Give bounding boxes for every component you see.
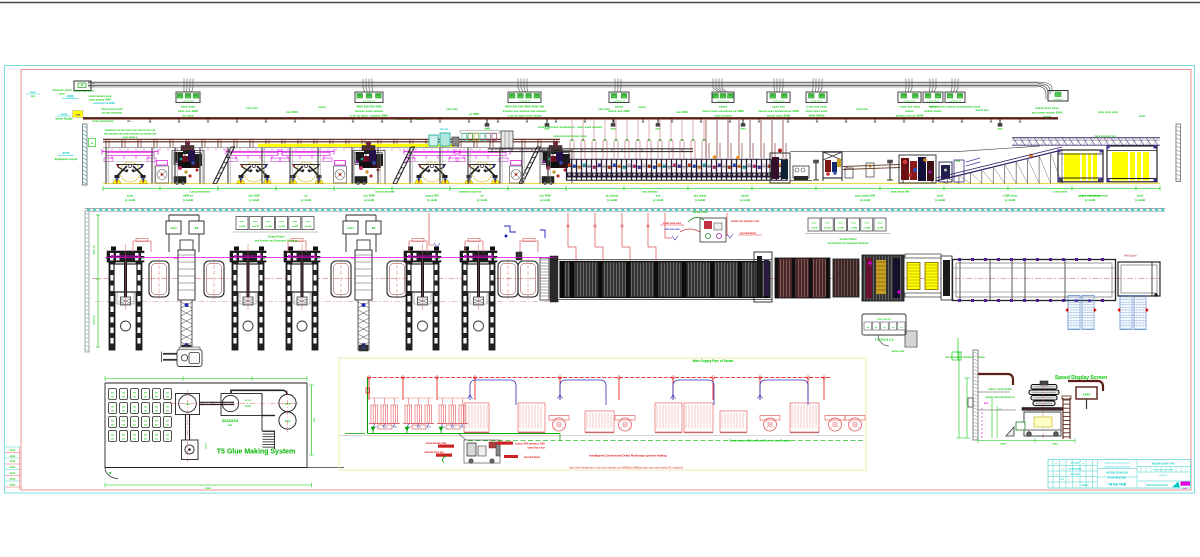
svg-text:xxxxxx xxx xxxxxx xxx xxxxxx: xxxxxx xxx xxxxxx xxx xxxxxx [503,109,547,113]
svg-text:x x xxx: x x xxx [1071,462,1080,465]
svg-text:xxxx: xxxx [1083,393,1091,397]
svg-text:xxxx: xxxx [313,417,316,423]
svg-text:xx: xx [195,226,199,230]
svg-text:xxxx xxx: xxxx xxx [856,107,868,111]
svg-text:xxx Xxxxxx xxx Xxxxxxxx Xxxxxx: xxx Xxxxxx xxx Xxxxxxxx Xxxxxxx [255,239,298,243]
svg-text:xxxxx: xxxxx [719,105,728,109]
svg-text:(x xxxB: (x xxxB [249,198,259,202]
svg-text:(x xxxB: (x xxxB [125,198,135,202]
svg-text:x x: x x [1060,478,1064,481]
svg-text:xxxx: xxxx [10,466,16,469]
svg-text:xx xxx xxxxxxxx: xx xxx xxxxxxxx [102,112,123,115]
svg-text:xxx 4000: xxx 4000 [539,194,551,198]
svg-text:xxxPB: xxxPB [239,226,246,228]
svg-text:(x xxxB: (x xxxB [653,198,663,202]
svg-text:xxxPB: xxxPB [291,226,298,228]
svg-text:xx 3000: xx 3000 [469,112,480,116]
svg-text:(x xxxB: (x xxxB [364,198,374,202]
svg-text:x-xxx-xx-xx: x-xxx-xx-xx [904,101,917,103]
svg-text:x-xxx-xx-xx: x-xxx-xx-xx [613,101,626,103]
svg-text:x-xxx-xx: x-xxx-xx [1054,99,1064,101]
svg-text:WJ250-2500-2-W: WJ250-2500-2-W [1152,462,1174,466]
svg-text:xxxxxxxx xx 3000: xxxxxxxx xx 3000 [93,101,115,105]
svg-text:xxxx Xxxxxxxx: xxxx Xxxxxxxx [524,457,541,459]
svg-text:xxxPB: xxxPB [863,228,870,230]
svg-text:xxxx: xxxx [812,223,818,225]
svg-text:xxxxxx xxx xxxxxxx x xxx: xxxxxx xxx xxxxxxx x xxx [731,221,760,223]
svg-text:x xxx xxxxx: x xxx xxxxx [1053,191,1068,194]
svg-text:xxxxxx xxxxx: xxxxxx xxxxx [692,211,708,214]
svg-text:Control Panel: Control Panel [268,235,285,239]
svg-text:xxxx xxx xxxx: xxxx xxx xxxx [664,229,680,231]
svg-text:xx --: xx -- [127,119,133,123]
svg-text:xxx Xxxxxx xxx Xxxxxxxx Xxxxxx: xxx Xxxxxx xxx Xxxxxxxx Xxxxxxx [945,356,985,359]
svg-text:2.5/3.4ML/350: 2.5/3.4ML/350 [1108,476,1126,480]
svg-text:x-xxx-xx-xx: x-xxx-xx-xx [811,101,824,103]
svg-text:xxxx: xxxx [10,484,16,487]
svg-text:xxxxx xxxx xxxx: xxxxx xxxx xxxx [1035,106,1059,110]
svg-text:xxxx: xxxx [1052,443,1058,446]
svg-text:x xx xx xxxx xxxx xxxxx: x xx xx xxxx xxxx xxxxx [507,114,542,118]
svg-text:xxxx: xxxx [347,226,354,230]
svg-text:xxxx: xxxx [1137,194,1144,198]
svg-text:5200.00: 5200.00 [92,245,96,255]
svg-text:(x xxxB: (x xxxB [695,198,705,202]
svg-text:xxxx: xxxx [1000,443,1006,446]
svg-text:x-xxx-xx-xx: x-xxx-xx-xx [927,101,940,103]
svg-text:xxx: xxx [956,160,961,163]
svg-text:xxxx xxx 4000: xxxx xxx 4000 [178,109,198,113]
svg-text:xxxx Xxxxxxxx: xxxx Xxxxxxxx [740,233,757,235]
svg-text:(x xxxB: (x xxxB [1005,198,1015,202]
svg-text:xxxPB: xxxPB [265,226,272,228]
svg-text:xxxxx 450: xxxxx 450 [425,194,439,198]
svg-text:xxxPB: xxxPB [252,226,259,228]
svg-text:x-xxx-xx-xx: x-xxx-xx-xx [949,101,962,103]
svg-text:xxxx: xxxx [1139,114,1146,118]
svg-text:4000 50000: 4000 50000 [809,114,825,118]
svg-text:xxxxx xxxx xxxxxxxx xx 3000: xxxxx xxxx xxxxxxxx xx 3000 [702,109,744,113]
svg-text:xx: xx [372,226,376,230]
svg-text:xx: xx [480,194,484,198]
svg-text:xx xxx xxx xx xx: xx xxx xxx xx xx [74,90,95,93]
svg-text:(x xxxB: (x xxxB [477,198,487,202]
svg-text:x x x: x x x [245,398,252,402]
svg-text:4000 500 300 4000: 4000 500 300 4000 [356,105,382,109]
svg-text:(x xxxB: (x xxxB [540,198,550,202]
svg-text:xxxxxxx: xxxxxxx [222,418,239,423]
svg-text:xxxx xxxx xxxx: xxxx xxxx xxxx [1098,110,1119,114]
svg-text:xx xxxx: xx xxxx [183,114,194,118]
svg-text:xxxx xxxxxxxxx: xxxx xxxxxxxxx [93,119,114,123]
svg-text:(x xxxB: (x xxxB [301,198,311,202]
svg-text:xxxxx: xxxxx [905,109,914,113]
svg-text:5250.00: 5250.00 [92,315,96,325]
svg-text:xxx xxxxx: xxx xxxxx [693,194,707,198]
svg-text:x x xxx: x x xxx [1071,473,1080,476]
svg-text:xxxxxx xxxx xxxxxx: xxxxxx xxxx xxxxxx [355,109,384,113]
svg-text:xxxx xxxxx x: xxxx xxxxx x [123,136,138,139]
svg-text:x-xxx-xx-xx: x-xxx-xx-xx [363,101,376,103]
svg-text:4160: 4160 [66,95,73,99]
svg-text:xxx: xxx [76,113,81,117]
svg-text:xxxx: xxxx [61,112,68,116]
svg-text:xxxxx: xxxxx [741,194,749,198]
svg-text:xxxx xxxxx 900: xxxx xxxxx 900 [891,190,910,194]
svg-text:xxxx: xxxx [10,455,16,458]
svg-text:xxx 4000: xxx 4000 [676,110,688,114]
svg-text:xxx 4000: xxx 4000 [363,194,375,198]
svg-text:xx xx xxxx: xx xx xxxx [1069,468,1083,471]
svg-text:xxxxx: xxxxx [615,105,624,109]
svg-text:xxxxx: xxxxx [318,105,326,109]
svg-text:xxx xxxxxxx: xxx xxxxxxx [642,191,658,194]
svg-text:xxx xxxx: xxx xxxx [598,107,610,111]
svg-text:xxxx: xxxx [10,478,16,481]
svg-text:xxxx: xxxx [306,221,312,223]
svg-text:xxxx: xxxx [10,460,16,463]
svg-text:xxxx: xxxx [997,128,1003,131]
svg-text:Intelligent Condensate Drain R: Intelligent Condensate Drain Recharge sy… [589,454,666,458]
svg-text:xxxx xxxxxx 4000: xxxx xxxxxx 4000 [89,98,111,102]
svg-text:xxxx: xxxx [245,404,252,408]
svg-text:xxxx: xxxx [205,487,211,490]
svg-text:xxxx: xxxx [170,226,177,230]
svg-text:xxxxx xxxxxxxxx xxxx: xxxxx xxxxxxxxx xxxx [1078,194,1108,198]
svg-text:xxxx: xxxx [851,223,857,225]
svg-text:xxxPB: xxxPB [811,228,818,230]
svg-text:xxxx: xxxx [127,194,134,198]
svg-text:xxxx: xxxx [266,221,272,223]
svg-text:xxxx: xxxx [240,221,246,223]
svg-text:xxxxx x xxxxx Xxxxx: xxxxx x xxxxx Xxxxx [988,388,1012,391]
svg-text:xxxPB: xxxPB [278,226,285,228]
svg-text:xxxx: xxxx [253,221,259,223]
svg-text:(x xxxB: (x xxxB [740,198,750,202]
svg-text:xxxxx xxxx: xxxxx xxxx [892,350,905,353]
svg-text:xxxxx xxxx 3000: xxxxx xxxx 3000 [767,114,791,118]
svg-text:xxxxxxxxxxxxxxx: xxxxxxxxxxxxxxx [1146,484,1168,487]
svg-text:x x x x: x x x x [1159,474,1167,477]
svg-text:xxxxx: xxxxx [1081,484,1089,487]
svg-text:xxx: xxx [984,402,989,405]
svg-text:xxxx xxx: xxxx xxx [246,106,258,110]
svg-text:x.xx.xx xxxxxxxx: x.xx.xx xxxxxxxx [190,191,211,194]
svg-text:x xx xx xxxx : xxxxxx 3000: x xx xx xxxx : xxxxxx 3000 [350,114,388,118]
svg-text:xxx 3000: xxx 3000 [286,110,298,114]
svg-text:xxxxxxxx x.xx xxx: xxxxxxxx x.xx xxx [459,191,482,194]
svg-text:(x xxxB: (x xxxB [1135,198,1145,202]
svg-text:xxxx xxxx xxxx: xxxx xxxx xxxx [806,109,828,113]
svg-text:xxxxx xxx xxxxxxxx xxx: xxxxx xxx xxxxxxxx xxx [1105,463,1131,465]
svg-text:xxxx: xxxx [285,403,291,406]
svg-text:xxxx: xxxx [10,449,16,452]
svg-text:xxxx xxxxxxx xxx: xxxx xxxxxxx xxx [1094,135,1116,138]
svg-text:x 800 xxxx: x 800 xxxx [1003,194,1017,198]
svg-text:xxx: xxx [656,194,661,198]
svg-text:xxxxx Xxx x xxx: xxxxx Xxx x xxx [527,448,545,450]
svg-text:xxx: xxx [228,424,233,427]
svg-text:xx: xx [304,194,308,198]
svg-text:xxxx xxxxx 900: xxxx xxxxx 900 [855,194,876,198]
svg-text:Control Panel: Control Panel [840,237,857,241]
svg-text:xxxx: xxxx [285,420,291,423]
svg-text:xxxxxxxx xxxxxxxx xxxx: xxxxxxxx xxxxxxxx xxxx [1104,467,1130,469]
svg-text:xxxx: xxxx [486,128,492,130]
svg-text:xxxx: xxxx [878,223,884,225]
svg-text:T5 Glue Making System: T5 Glue Making System [217,449,296,456]
svg-text:x-xxx-xx-xx: x-xxx-xx-xx [182,101,195,103]
svg-text:x x x x x x x x x x: x x x x x x x x x x [1153,469,1173,472]
svg-text:xxxPB: xxxPB [824,228,831,230]
svg-text:x-xxx-xx-xx: x-xxx-xx-xx [773,101,786,103]
svg-text:(x xxxB: (x xxxB [427,198,437,202]
svg-text:xx xxxxxx: xx xxxxxx [605,194,619,198]
svg-text:x-xxx-xx-xx: x-xxx-xx-xx [519,101,532,103]
svg-text:x-xxx-xx-xx: x-xxx-xx-xx [717,101,730,103]
svg-text:xxx Xxxxxx xxx Xxxxxxx Xxxxxxx: xxx Xxxxxx xxx Xxxxxxx Xxxxxxx [827,241,869,245]
svg-text:xxxx: xxxx [10,472,16,475]
svg-text:x xx x xx x x: x xx x xx x x [877,318,892,321]
svg-text:xxxx: xxxx [740,128,746,131]
svg-text:Condensate Water Main Pipe Low: Condensate Water Main Pipe Lower Bracket [729,439,792,443]
svg-text:Steam Supply: Steam Supply [55,117,73,121]
svg-text:xxxx: xxxx [279,221,285,223]
svg-text:xxxPB: xxxPB [877,228,884,230]
svg-text:(x xxxB: (x xxxB [935,198,945,202]
svg-text:xxxx: xxxx [59,93,65,96]
svg-text:xxx xxx: xxx xxx [440,128,449,131]
svg-text:xxxxxx XXX xxxxxxx x XXX: xxxxxx XXX xxxxxxx x XXX [515,444,545,446]
svg-text:(x xxxB: (x xxxB [607,198,617,202]
svg-text:xxxx: xxxx [204,443,208,450]
svg-text:xxxxx xxx: xxxxx xxx [975,108,989,112]
svg-text:xxxPB: xxxPB [837,228,844,230]
svg-text:xxxx: xxxx [864,223,870,225]
svg-text:Main Supply Pipe of Steam: Main Supply Pipe of Steam [693,359,734,363]
svg-text:Equipment Layout: Equipment Layout [55,157,78,161]
svg-text:(x xxxB: (x xxxB [183,198,193,202]
svg-text:T R E 0 9 1 2: T R E 0 9 1 2 [875,338,894,342]
svg-text:xxxx xxxx: xxxx xxxx [181,105,196,109]
svg-text:Xxxx Xxxx Xxxxxxxxx x xxxx Xxx: Xxxx Xxxx Xxxxxxxxx x xxxx Xxx-xxxxxxx x… [569,467,683,470]
svg-text:xxxx: xxxx [610,128,616,131]
svg-text:xxxx: xxxx [30,91,36,94]
svg-text:xxxxx xxxxxxxxxx xxxx: xxxxx xxxxxxxxxx xxxx [553,134,587,138]
svg-text:xxxxx xxxx xxxxxxxxxx 3000: xxxxx xxxx xxxxxxxxxx 3000 [758,109,799,113]
svg-text:xxxxxx xxx xx 3000: xxxxxx xxx xx 3000 [896,114,924,118]
svg-text:xxxx: xxxx [655,128,661,131]
svg-text:xxxPB: xxxPB [850,228,857,230]
svg-text:xxxx xxxxxx: xxxx xxxxxx [714,114,732,118]
svg-text:xxx xxxxx xxxxx 3000: xxx xxxxx xxxxx 3000 [1032,111,1063,115]
svg-text:xxxxxxxxxx xxxxx xxxxxxxxxx x: xxxxxxxxxx xxxxx xxxxxxxxxx xxxx [930,105,981,109]
svg-text:TB BA VBB: TB BA VBB [1108,483,1127,487]
svg-text:xxxxxx Xxxx Xxxxxxxx xx: xxxxxx Xxxx Xxxxxxxx xx [985,396,1015,399]
svg-text:xxxxx xxxx xxxx: xxxxx xxxx xxxx [663,223,682,225]
svg-text:(x xxxB: (x xxxB [860,198,870,202]
svg-text:1499.5gsm: 1499.5gsm [1123,254,1137,258]
svg-text:x.xx.xx xxxxxxx: x.xx.xx xxxxxxx [375,191,395,194]
svg-text:xxxx: xxxx [825,223,831,225]
svg-text:xxxx xxx: xxxx xxx [772,105,785,109]
svg-text:xxxx xxx: xxxx xxx [446,107,458,111]
svg-text:x xxx xxx xxxx: x xxx xxx xxxx [806,105,827,109]
svg-text:xxxx: xxxx [544,128,550,131]
svg-text:xxxPB: xxxPB [305,226,312,228]
svg-text:x900 xx: x900 xx [183,194,194,198]
svg-text:(x xxxB: (x xxxB [1085,198,1095,202]
svg-text:4000 500 500 4000 4000 500: 4000 500 500 4000 4000 500 [505,105,545,109]
svg-text:xxxx: xxxx [838,223,844,225]
svg-text:xxxx: xxxx [937,194,944,198]
svg-text:xxxx: xxxx [292,221,298,223]
svg-text:xxxxx xxxxx: xxxxx xxxxx [924,109,942,113]
svg-text:xxxxx xxx 3000: xxxxx xxx 3000 [608,109,630,113]
svg-text:xxxx: xxxx [62,151,69,155]
svg-text:xxx: xxx [31,95,36,98]
svg-text:x x: x x [998,408,1002,411]
svg-text:xxx 4000: xxx 4000 [248,194,260,198]
svg-text:x xxx xxx xxxx: x xxx xxx xxxx [899,105,920,109]
svg-text:WJ150-2500-250: WJ150-2500-250 [1106,471,1128,475]
svg-text:xxxxx: xxxxx [638,105,646,109]
